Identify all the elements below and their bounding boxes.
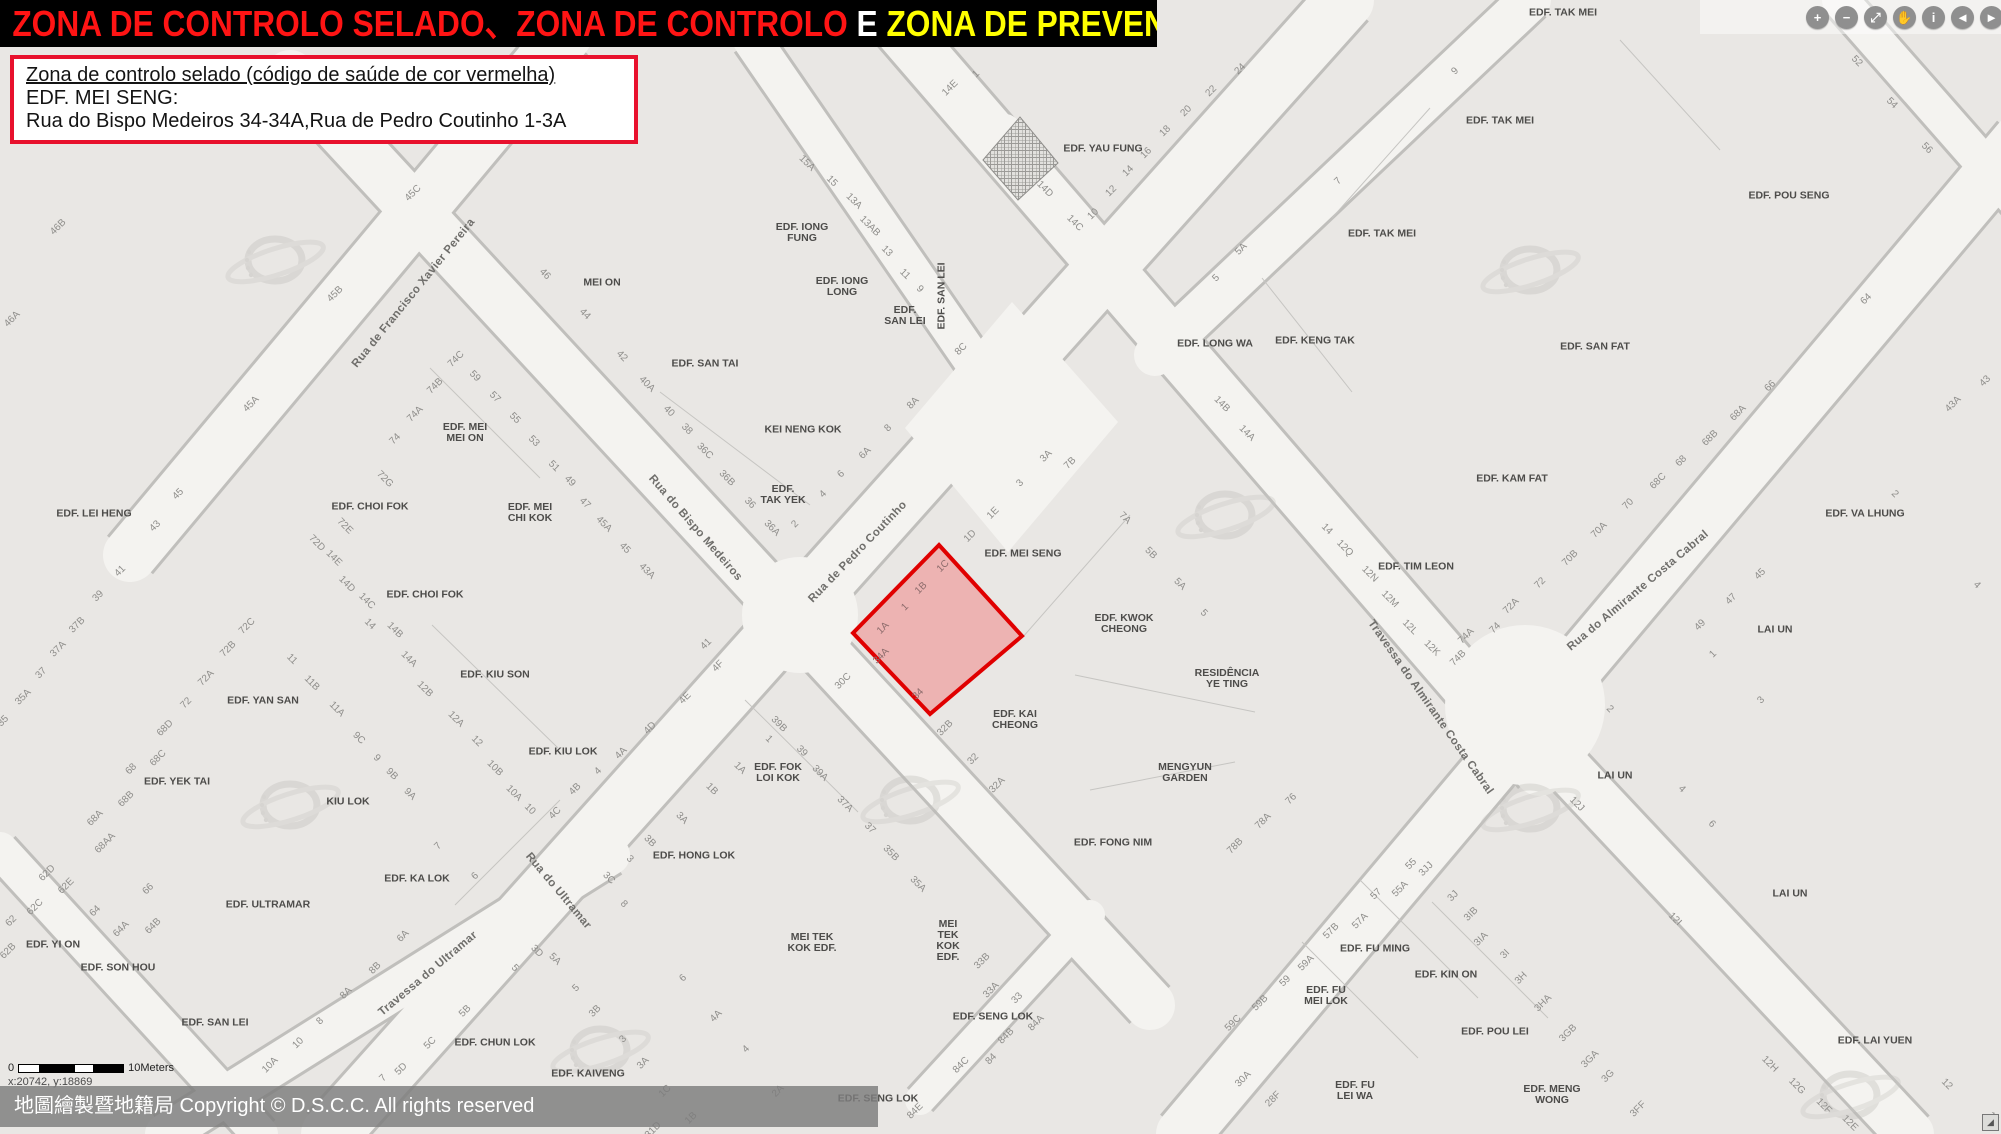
previous-view-icon[interactable]: ◄ xyxy=(1951,6,1974,29)
building-label: LAI UN xyxy=(1598,770,1633,782)
building-label: EDF. KWOKCHEONG xyxy=(1095,612,1154,635)
building-label: EDF. TAK MEI xyxy=(1466,115,1534,127)
building-label: EDF. TAK MEI xyxy=(1529,7,1597,19)
next-view-icon[interactable]: ► xyxy=(1980,6,2001,29)
building-label: EDF. CHOI FOK xyxy=(386,589,463,601)
building-label: EDF. CHUN LOK xyxy=(454,1037,536,1049)
building-label: EDF. FOKLOI KOK xyxy=(754,761,802,784)
building-label: EDF. POU LEI xyxy=(1461,1026,1529,1038)
building-label: EDF. YAU FUNG xyxy=(1063,143,1142,155)
info-box-heading: Zona de controlo selado (código de saúde… xyxy=(26,64,626,87)
building-label: EDF. VA LHUNG xyxy=(1825,508,1904,520)
building-label: EDF. FU MING xyxy=(1340,943,1410,955)
building-label: EDF. YI ON xyxy=(26,939,80,951)
building-label: KEI NENG KOK xyxy=(764,424,841,436)
building-label: EDF. KAIVENG xyxy=(551,1068,625,1080)
toolbar: +−⤢✋i◄► xyxy=(1806,6,2001,29)
building-label: EDF. HONG LOK xyxy=(653,850,736,862)
building-label: EDF. LAI YUEN xyxy=(1838,1035,1912,1047)
building-label: LAI UN xyxy=(1758,624,1793,636)
building-label: EDF. KAICHEONG xyxy=(992,708,1038,731)
title-red-segment: ZONA DE CONTROLO SELADO、ZONA DE CONTROLO xyxy=(12,3,847,44)
building-label: EDF. LEI HENG xyxy=(56,508,131,520)
zoom-in-icon[interactable]: + xyxy=(1806,6,1829,29)
building-label: EDF. FONG NIM xyxy=(1074,837,1152,849)
building-label: EDF. POU SENG xyxy=(1748,190,1829,202)
building-label: EDF. FULEI WA xyxy=(1335,1079,1375,1102)
building-label: EDF. SON HOU xyxy=(81,962,156,974)
zoom-out-icon[interactable]: − xyxy=(1835,6,1858,29)
building-label: EDF. SENG LOK xyxy=(953,1011,1034,1023)
building-label: EDF. FUMEI LOK xyxy=(1304,984,1348,1007)
map-canvas[interactable]: 46B46A45C45B45A4543413937B37A3735A357474… xyxy=(0,0,2001,1134)
building-label: EDF. MEI SENG xyxy=(984,548,1061,560)
building-label: EDF. ULTRAMAR xyxy=(226,899,311,911)
building-label: EDF. SAN FAT xyxy=(1560,341,1630,353)
identify-icon[interactable]: i xyxy=(1922,6,1945,29)
copyright-text: 地圖繪製暨地籍局 Copyright © D.S.C.C. All rights… xyxy=(14,1095,534,1117)
building-label: EDF. LONG WA xyxy=(1177,338,1253,350)
corner-widget-icon[interactable]: ◢ xyxy=(1982,1114,1999,1131)
info-box-address: Rua do Bispo Medeiros 34-34A,Rua de Pedr… xyxy=(26,110,626,133)
building-label: EDF. CHOI FOK xyxy=(331,501,408,513)
title-yellow-segment: ZONA DE PREVENÇÃO xyxy=(886,3,1157,44)
building-label: EDF. TIM LEON xyxy=(1378,561,1454,573)
building-label: MEI ON xyxy=(583,277,620,289)
scale-bar: 0 10Meters xyxy=(8,1062,174,1074)
building-label: EDF. KIU LOK xyxy=(529,746,598,758)
building-label: EDF. KIN ON xyxy=(1415,969,1477,981)
building-label: EDF. SAN TAI xyxy=(672,358,739,370)
building-label: EDF. KA LOK xyxy=(384,873,450,885)
building-label: EDF. KENG TAK xyxy=(1275,335,1355,347)
building-label: EDF. YAN SAN xyxy=(227,695,299,707)
building-label: EDF. SAN LEI xyxy=(936,262,948,329)
scale-bar-distance: 10Meters xyxy=(128,1062,174,1074)
building-label: LAI UN xyxy=(1773,888,1808,900)
building-label: MENGYUNGARDEN xyxy=(1158,761,1212,784)
scale-bar-zero: 0 xyxy=(8,1062,14,1074)
info-box: Zona de controlo selado (código de saúde… xyxy=(10,55,638,144)
info-box-building: EDF. MEI SENG: xyxy=(26,87,626,110)
title-banner: ZONA DE CONTROLO SELADO、ZONA DE CONTROLO… xyxy=(0,0,1157,47)
building-label: EDF. KIU SON xyxy=(460,669,529,681)
full-extent-icon[interactable]: ⤢ xyxy=(1864,6,1887,29)
title-white-segment: E xyxy=(848,3,887,44)
building-label: EDF. SAN LEI xyxy=(181,1017,248,1029)
title-text: ZONA DE CONTROLO SELADO、ZONA DE CONTROLO… xyxy=(0,0,1157,47)
building-label: EDF. KAM FAT xyxy=(1476,473,1548,485)
pan-icon[interactable]: ✋ xyxy=(1893,6,1916,29)
scale-bar-graphic xyxy=(18,1064,124,1073)
copyright-bar: 地圖繪製暨地籍局 Copyright © D.S.C.C. All rights… xyxy=(0,1086,878,1127)
building-label: KIU LOK xyxy=(326,796,370,808)
building-label: MEI TEKKOK EDF. xyxy=(787,931,836,954)
building-label: EDF. MEIMEI ON xyxy=(443,421,487,444)
building-label: EDF. YEK TAI xyxy=(144,776,210,788)
building-label: MEITEKKOKEDF. xyxy=(936,918,960,963)
map-application: 46B46A45C45B45A4543413937B37A3735A357474… xyxy=(0,0,2001,1134)
building-label: EDF. MEICHI KOK xyxy=(508,501,553,524)
building-label: EDF. TAK MEI xyxy=(1348,228,1416,240)
